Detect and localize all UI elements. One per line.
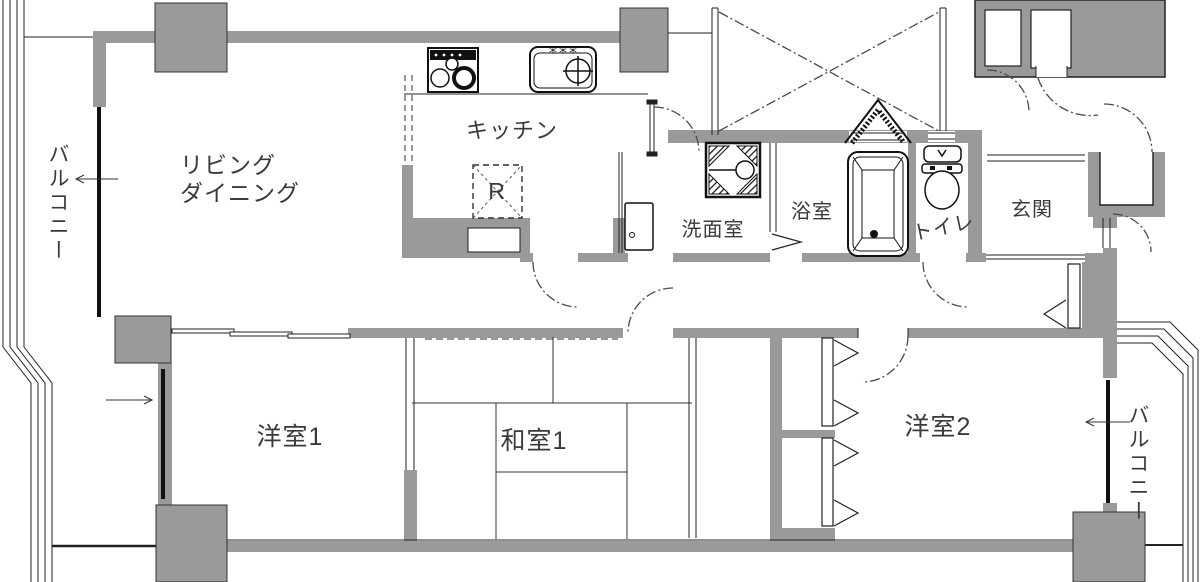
closet-folding-doors [772,234,1080,526]
walls [93,31,1165,552]
pillars [115,3,1145,582]
sink-icon: ＊＊＊ [530,46,596,92]
kitchen-cabinet [468,228,520,252]
refrigerator-space [473,165,522,218]
cabinet-icon [625,203,653,250]
stove-icon [428,48,478,92]
tatami-lines [412,337,692,539]
floorplan: ＊＊＊ [0,0,1200,582]
balcony-left-railing [3,0,156,582]
toilet-icon [922,146,962,209]
bathtub-icon [848,152,908,256]
svg-text:＊＊＊: ＊＊＊ [548,46,578,57]
thin-walls [227,8,1153,540]
kitchen-counter-dashed [405,75,412,165]
sliding-door-tracks [172,329,350,338]
washing-machine-pan-icon [706,143,760,197]
utility-block [975,0,1165,77]
floorplan-drawing: ＊＊＊ [0,0,1200,582]
